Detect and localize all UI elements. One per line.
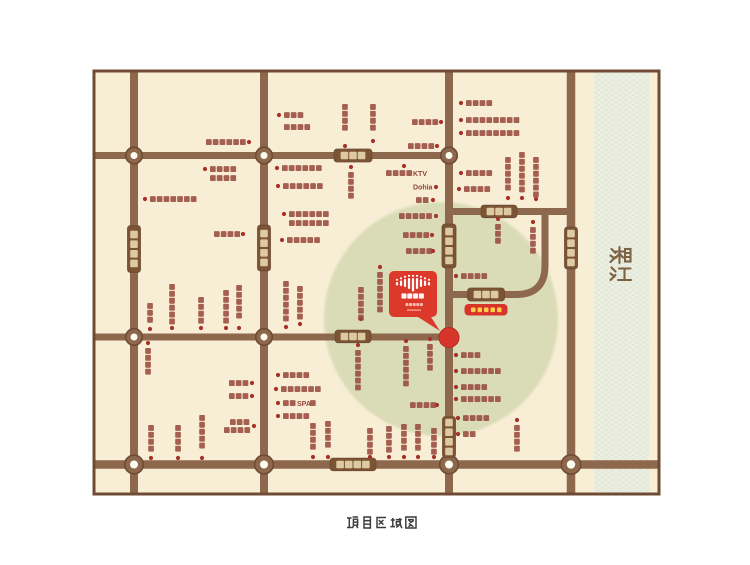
svg-text:KTV: KTV [413,171,427,178]
svg-text:SPA: SPA [297,401,311,408]
svg-text:Dohia: Dohia [413,185,433,192]
